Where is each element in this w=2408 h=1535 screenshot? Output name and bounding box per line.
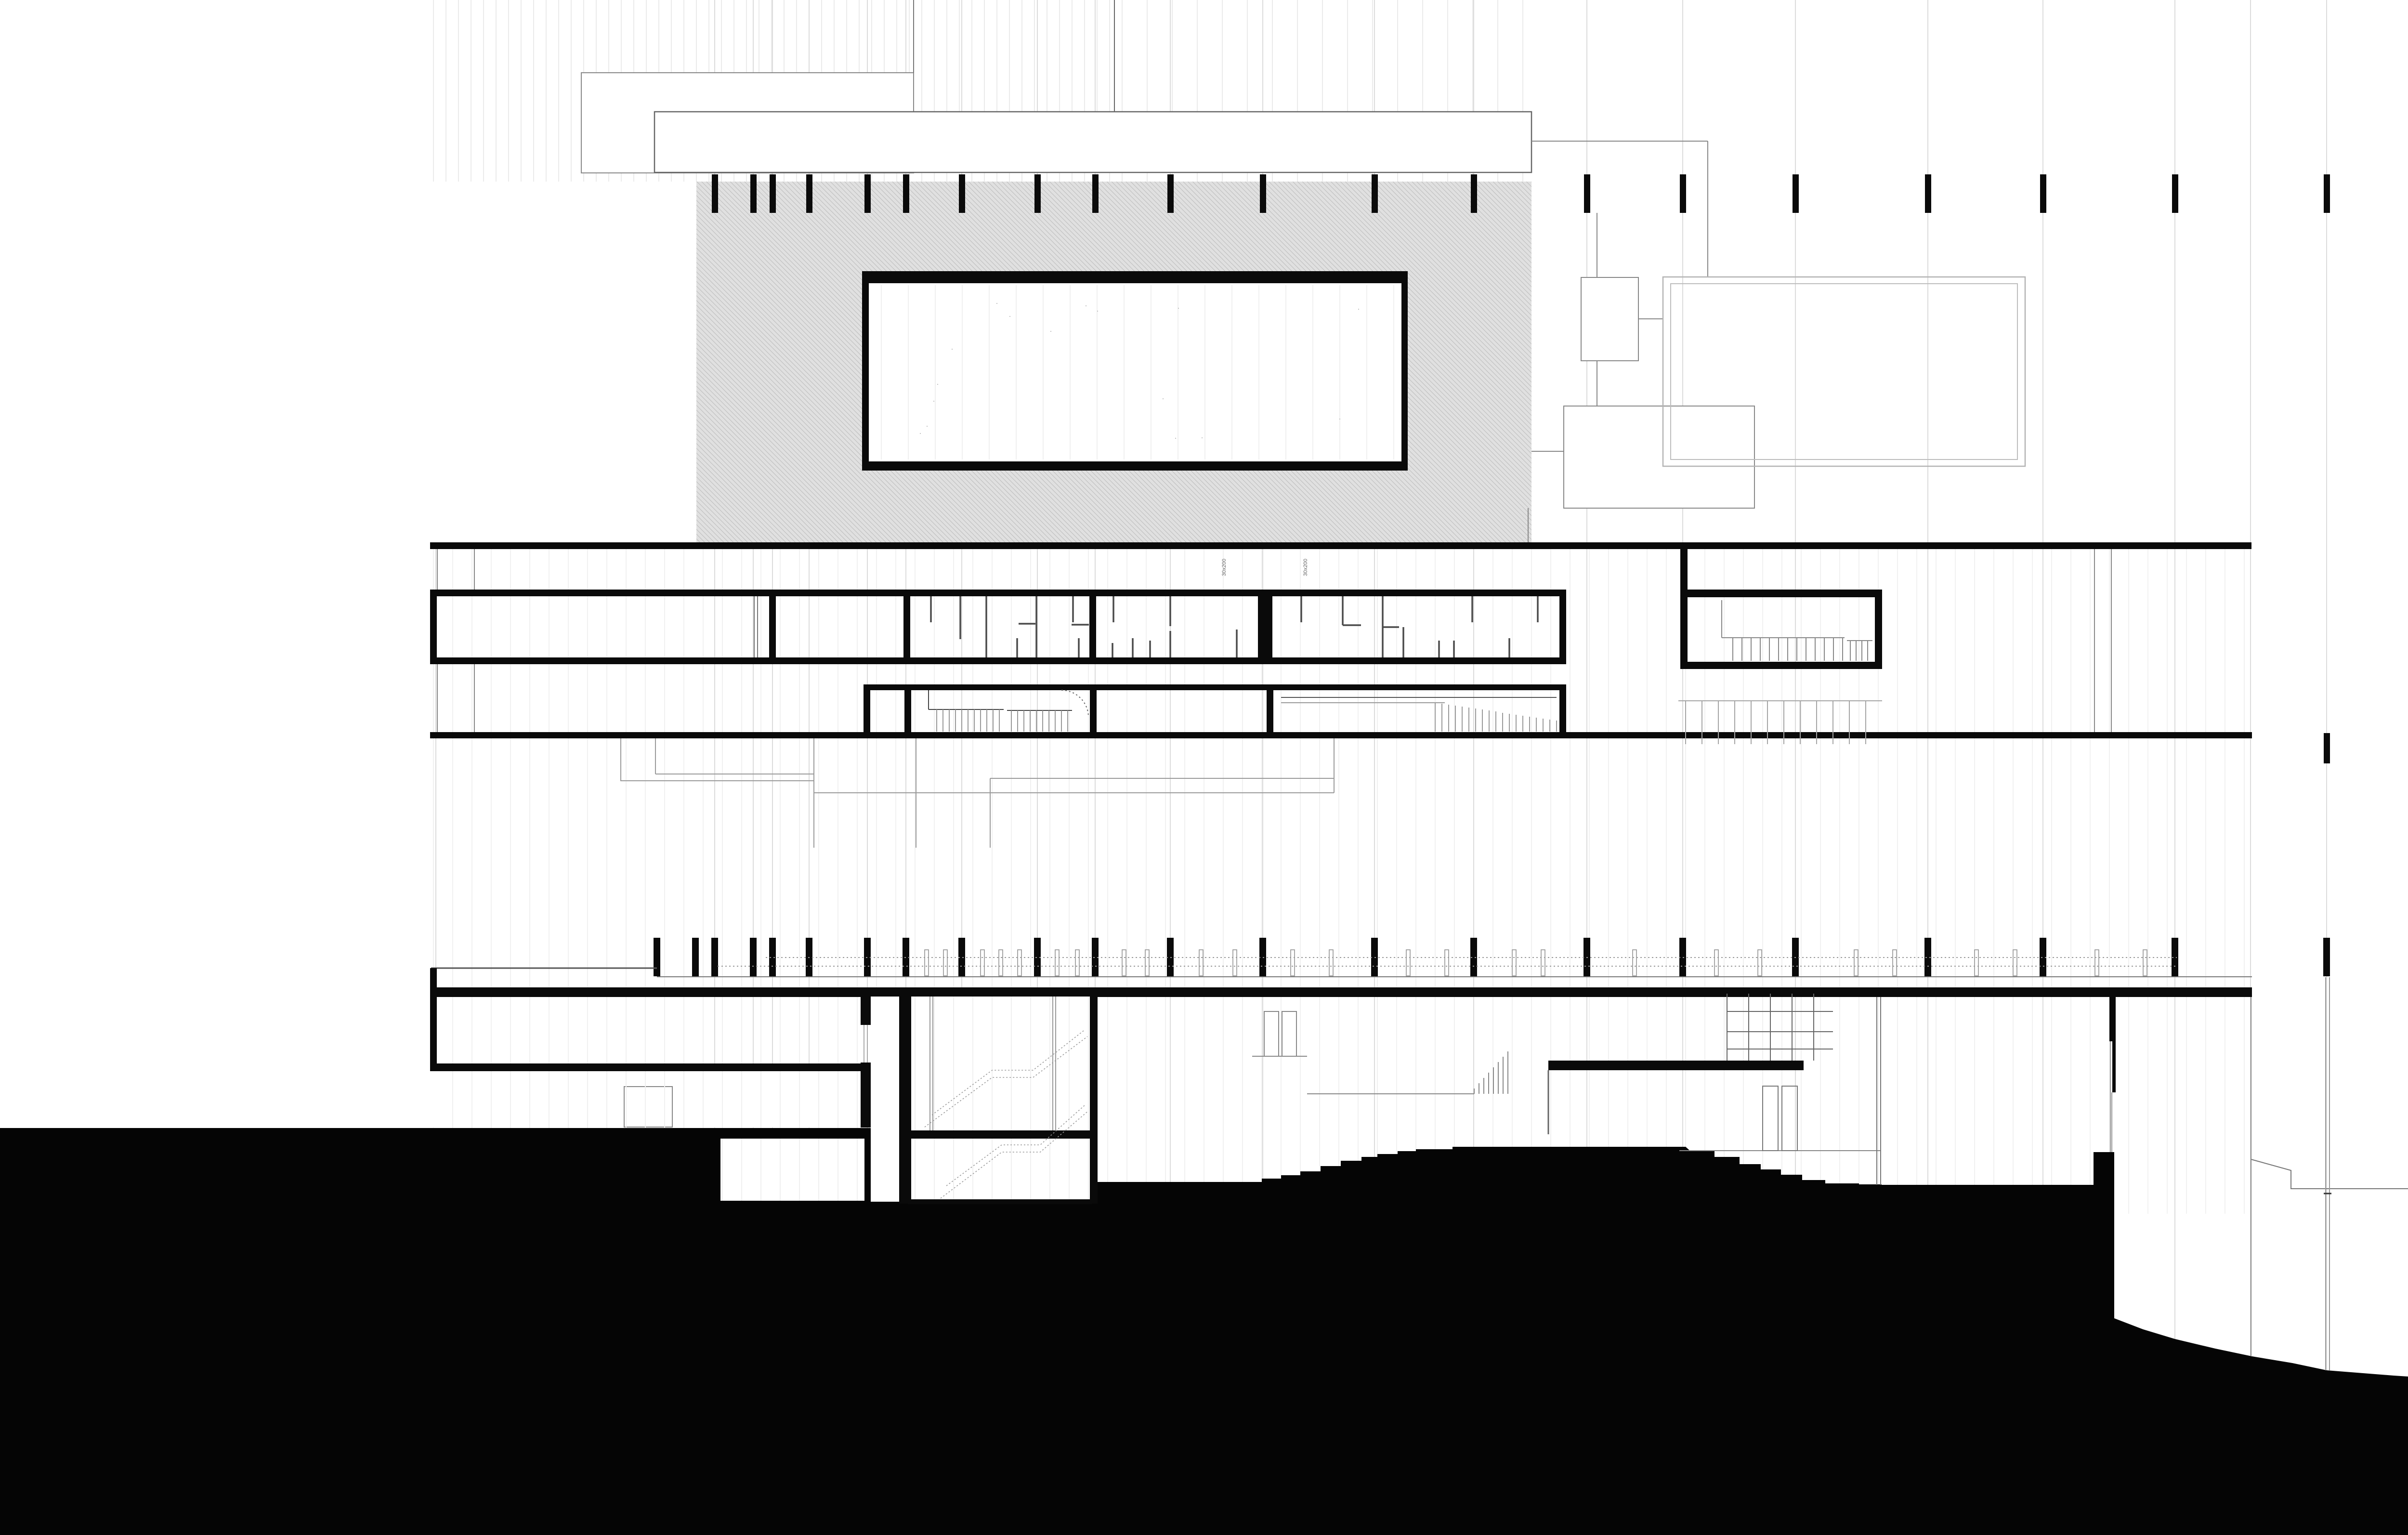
svg-text:30x200: 30x200 <box>1221 559 1227 576</box>
svg-text:30x200: 30x200 <box>1303 559 1309 576</box>
